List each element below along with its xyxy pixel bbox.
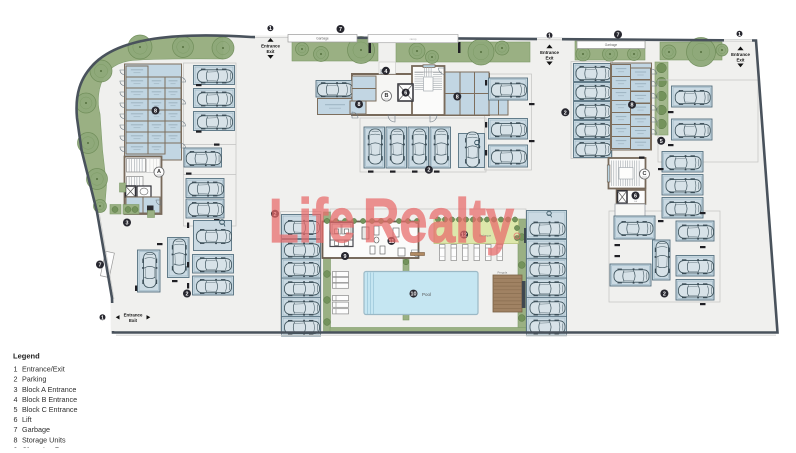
svg-text:Lift: Lift bbox=[22, 415, 32, 424]
svg-text:Exit: Exit bbox=[129, 318, 138, 323]
svg-text:8: 8 bbox=[14, 435, 18, 444]
svg-text:1: 1 bbox=[269, 26, 272, 32]
svg-text:C: C bbox=[643, 171, 647, 177]
svg-text:Exit: Exit bbox=[545, 55, 554, 60]
svg-text:4: 4 bbox=[14, 395, 18, 404]
svg-text:2: 2 bbox=[663, 292, 666, 298]
svg-text:Life: Life bbox=[269, 187, 355, 256]
svg-text:Block A Entrance: Block A Entrance bbox=[22, 385, 76, 394]
svg-text:8: 8 bbox=[631, 103, 634, 109]
svg-text:Garbage: Garbage bbox=[605, 43, 618, 47]
svg-text:2: 2 bbox=[564, 110, 567, 116]
svg-text:2: 2 bbox=[186, 292, 189, 298]
svg-text:7: 7 bbox=[339, 27, 342, 33]
svg-text:10: 10 bbox=[411, 292, 417, 298]
svg-text:1: 1 bbox=[101, 315, 104, 321]
svg-text:7: 7 bbox=[617, 33, 620, 39]
svg-text:A: A bbox=[157, 169, 161, 175]
svg-text:Pool: Pool bbox=[422, 292, 431, 297]
svg-text:Garbage: Garbage bbox=[316, 37, 329, 41]
svg-text:Entrance: Entrance bbox=[540, 50, 559, 55]
svg-text:5: 5 bbox=[660, 139, 663, 145]
svg-text:5: 5 bbox=[14, 405, 18, 414]
svg-text:8: 8 bbox=[154, 109, 157, 115]
svg-text:Entrance/Exit: Entrance/Exit bbox=[22, 365, 65, 374]
svg-text:Garbage: Garbage bbox=[22, 425, 50, 434]
svg-text:Parking: Parking bbox=[22, 375, 46, 384]
svg-text:Legend: Legend bbox=[13, 352, 40, 361]
svg-text:3: 3 bbox=[126, 221, 129, 227]
svg-text:2: 2 bbox=[14, 375, 18, 384]
svg-text:Exit: Exit bbox=[736, 57, 745, 62]
svg-text:Block C Entrance: Block C Entrance bbox=[22, 405, 78, 414]
svg-text:2: 2 bbox=[427, 168, 430, 174]
svg-text:Entrance: Entrance bbox=[731, 52, 750, 57]
svg-text:Entrance: Entrance bbox=[261, 44, 280, 49]
svg-text:Realty: Realty bbox=[363, 187, 514, 256]
svg-text:4: 4 bbox=[384, 69, 387, 75]
svg-text:Pergola: Pergola bbox=[498, 271, 508, 275]
svg-text:8: 8 bbox=[358, 102, 361, 108]
svg-text:6: 6 bbox=[14, 415, 18, 424]
svg-text:R: R bbox=[516, 234, 519, 239]
svg-text:Block B Entrance: Block B Entrance bbox=[22, 395, 77, 404]
svg-text:Exit: Exit bbox=[266, 49, 275, 54]
svg-text:1: 1 bbox=[738, 32, 741, 38]
svg-text:Storage Units: Storage Units bbox=[22, 435, 66, 444]
svg-text:8: 8 bbox=[456, 95, 459, 101]
svg-text:6: 6 bbox=[634, 194, 637, 200]
svg-text:B: B bbox=[385, 93, 389, 99]
svg-text:7: 7 bbox=[99, 263, 102, 269]
svg-text:ramp: ramp bbox=[410, 37, 417, 41]
svg-text:1: 1 bbox=[548, 33, 551, 39]
svg-text:7: 7 bbox=[14, 425, 18, 434]
svg-text:3: 3 bbox=[14, 385, 18, 394]
svg-text:Entrance: Entrance bbox=[124, 312, 143, 317]
svg-text:1: 1 bbox=[14, 365, 18, 374]
svg-text:Lift: Lift bbox=[634, 200, 637, 203]
svg-text:6: 6 bbox=[404, 91, 407, 97]
